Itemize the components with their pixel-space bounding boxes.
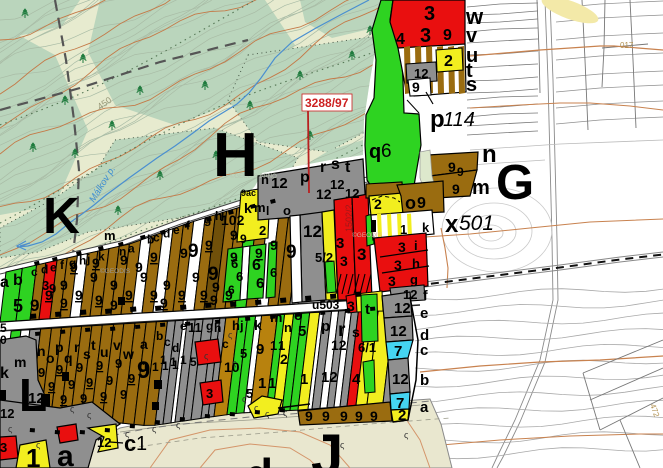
svg-text:v: v (466, 25, 478, 47)
svg-text:9: 9 (240, 232, 247, 246)
svg-text:2: 2 (259, 223, 266, 238)
svg-text:12: 12 (321, 369, 338, 386)
svg-text:g: g (410, 272, 418, 287)
svg-text:3: 3 (394, 257, 402, 273)
svg-text:e: e (180, 319, 187, 333)
svg-text:a: a (420, 399, 429, 416)
svg-text:1: 1 (172, 358, 179, 372)
svg-text:9: 9 (160, 295, 168, 311)
svg-text:d: d (163, 227, 170, 241)
svg-text:e: e (420, 305, 428, 322)
svg-text:9: 9 (48, 379, 55, 394)
svg-text:12: 12 (0, 406, 14, 421)
svg-text:t: t (365, 301, 370, 318)
svg-text:9: 9 (355, 408, 363, 424)
svg-text:9: 9 (457, 165, 464, 179)
svg-text:i: i (414, 238, 418, 253)
svg-text:5/2: 5/2 (315, 250, 333, 265)
svg-text:12: 12 (392, 371, 409, 388)
svg-text:6: 6 (228, 283, 235, 297)
svg-text:6: 6 (256, 275, 264, 292)
svg-text:u503: u503 (312, 298, 340, 312)
svg-text:12: 12 (271, 175, 288, 192)
svg-text:c: c (164, 335, 171, 349)
svg-text:o: o (46, 350, 55, 366)
svg-text:9: 9 (322, 408, 330, 424)
svg-text:9: 9 (150, 287, 158, 303)
svg-text:1: 1 (268, 375, 276, 392)
svg-text:p: p (321, 318, 330, 335)
svg-text:10: 10 (224, 359, 240, 375)
svg-text:c: c (420, 342, 428, 359)
svg-text:m: m (104, 228, 116, 243)
svg-text:9: 9 (30, 296, 39, 315)
svg-text:3: 3 (388, 273, 396, 289)
svg-text:9: 9 (448, 159, 456, 175)
svg-text:g: g (206, 319, 213, 333)
svg-text:ς: ς (8, 424, 13, 434)
svg-text:k: k (0, 365, 9, 382)
svg-text:9ac: 9ac (241, 188, 256, 198)
svg-text:9: 9 (208, 264, 219, 285)
svg-text:6: 6 (381, 141, 392, 162)
svg-text:9: 9 (417, 195, 426, 212)
svg-text:q: q (64, 350, 73, 366)
svg-text:2: 2 (374, 196, 382, 212)
svg-text:9: 9 (443, 27, 452, 44)
svg-text:j: j (86, 252, 90, 266)
svg-text:p: p (55, 339, 64, 355)
svg-text:m: m (270, 309, 282, 325)
svg-text:k: k (244, 200, 252, 216)
svg-text:9: 9 (86, 375, 93, 390)
svg-text:d: d (245, 449, 273, 468)
svg-text:9: 9 (110, 297, 118, 313)
svg-text:o: o (294, 307, 303, 323)
svg-text:9: 9 (56, 362, 63, 377)
svg-text:9: 9 (192, 269, 200, 285)
svg-text:©GEODIS: ©GEODIS (352, 231, 383, 239)
svg-text:9: 9 (200, 287, 208, 303)
svg-text:s: s (352, 324, 360, 340)
svg-text:h: h (79, 254, 86, 268)
svg-text:ς: ς (70, 404, 75, 414)
svg-text:9: 9 (188, 241, 199, 262)
svg-text:9: 9 (163, 277, 171, 293)
svg-text:c: c (124, 431, 136, 456)
svg-text:9: 9 (70, 259, 78, 275)
svg-text:9: 9 (210, 292, 218, 308)
svg-text:3: 3 (206, 386, 213, 401)
svg-text:1: 1 (400, 222, 407, 237)
svg-text:h: h (412, 256, 420, 271)
svg-text:2: 2 (398, 407, 406, 424)
svg-text:9: 9 (60, 392, 67, 407)
svg-text:9: 9 (90, 269, 98, 285)
svg-text:2: 2 (280, 351, 288, 367)
svg-text:ς: ς (204, 351, 209, 361)
svg-text:9: 9 (286, 242, 297, 263)
svg-text:6: 6 (236, 269, 243, 284)
svg-text:9: 9 (120, 252, 128, 268)
svg-text:1: 1 (258, 375, 266, 392)
svg-text:9: 9 (370, 408, 378, 424)
svg-text:ς: ς (87, 410, 92, 420)
svg-text:a: a (128, 241, 135, 255)
svg-text:9: 9 (80, 391, 87, 406)
svg-text:ς: ς (404, 430, 409, 440)
svg-text:c: c (153, 230, 160, 244)
svg-text:5: 5 (190, 355, 197, 369)
svg-text:9: 9 (120, 387, 127, 402)
svg-text:s: s (466, 74, 477, 96)
svg-text:1: 1 (142, 360, 149, 374)
svg-text:6/1: 6/1 (358, 340, 376, 355)
svg-text:9: 9 (106, 373, 113, 388)
svg-text:©GEODIS: ©GEODIS (100, 267, 131, 275)
svg-text:017: 017 (620, 41, 634, 50)
svg-text:9: 9 (230, 227, 238, 243)
svg-text:s: s (331, 156, 340, 173)
svg-text:3288/97: 3288/97 (305, 96, 349, 110)
svg-text:m: m (472, 177, 490, 199)
svg-text:1: 1 (180, 353, 187, 367)
svg-text:o: o (283, 203, 291, 218)
svg-text:a: a (140, 336, 148, 352)
svg-text:d: d (172, 341, 179, 355)
svg-text:9: 9 (100, 389, 107, 404)
svg-text:x: x (445, 211, 459, 238)
svg-text:n: n (284, 320, 292, 335)
svg-text:1: 1 (136, 433, 147, 455)
svg-text:o: o (405, 193, 416, 213)
svg-text:9: 9 (125, 287, 133, 303)
svg-text:9: 9 (150, 249, 158, 265)
svg-text:3: 3 (0, 440, 7, 455)
svg-text:9: 9 (115, 356, 122, 371)
svg-text:G: G (496, 156, 534, 210)
svg-text:9: 9 (92, 255, 100, 271)
svg-text:1502/2: 1502/2 (344, 204, 354, 232)
svg-text:9: 9 (135, 259, 143, 275)
svg-text:12: 12 (394, 300, 411, 317)
svg-text:9: 9 (270, 237, 278, 253)
svg-text:3: 3 (357, 245, 366, 264)
svg-text:p: p (300, 169, 310, 186)
svg-text:n: n (37, 343, 46, 359)
svg-text:r: r (338, 320, 346, 341)
svg-text:m: m (14, 354, 26, 370)
svg-text:c: c (31, 265, 38, 279)
svg-text:9: 9 (38, 365, 45, 380)
svg-text:1: 1 (152, 360, 159, 374)
svg-text:ς: ς (152, 424, 157, 434)
svg-text:m: m (254, 200, 266, 215)
svg-text:r: r (74, 339, 80, 355)
svg-text:12: 12 (345, 186, 359, 201)
svg-text:7: 7 (394, 343, 402, 360)
svg-text:9: 9 (49, 281, 56, 296)
svg-text:n: n (261, 172, 269, 187)
svg-text:9: 9 (178, 287, 186, 303)
svg-text:b: b (420, 372, 429, 389)
svg-text:9: 9 (40, 393, 47, 408)
svg-text:12: 12 (390, 323, 407, 340)
svg-text:a: a (57, 440, 74, 468)
svg-text:J: J (311, 423, 343, 468)
svg-text:9: 9 (60, 295, 68, 311)
svg-text:6: 6 (252, 257, 261, 274)
svg-text:9: 9 (68, 377, 75, 392)
svg-text:9: 9 (256, 341, 264, 358)
svg-text:d: d (41, 262, 48, 276)
svg-text:k: k (422, 220, 430, 235)
svg-text:q: q (369, 141, 381, 163)
svg-text:5: 5 (240, 346, 247, 361)
svg-text:l: l (266, 204, 269, 218)
svg-text:f: f (423, 287, 428, 303)
svg-text:v: v (113, 337, 121, 353)
svg-text:4: 4 (352, 371, 361, 388)
svg-text:3: 3 (398, 239, 406, 255)
svg-text:j: j (239, 318, 244, 333)
svg-text:n: n (482, 141, 497, 168)
svg-text:3: 3 (347, 298, 355, 314)
svg-text:9: 9 (412, 79, 420, 95)
svg-text:w: w (122, 346, 134, 362)
svg-text:s: s (83, 346, 91, 362)
svg-text:g: g (204, 213, 211, 227)
svg-text:b: b (13, 272, 23, 289)
svg-text:3: 3 (424, 3, 435, 25)
svg-text:9: 9 (452, 181, 460, 197)
svg-text:12: 12 (97, 435, 111, 450)
svg-text:1: 1 (162, 359, 169, 373)
svg-text:9: 9 (60, 277, 68, 293)
svg-text:1: 1 (26, 443, 40, 468)
svg-text:501: 501 (459, 212, 494, 235)
svg-text:4: 4 (396, 31, 405, 48)
svg-text:1: 1 (300, 371, 308, 388)
svg-text:9: 9 (205, 237, 213, 253)
svg-text:5: 5 (246, 386, 253, 401)
svg-text:e: e (50, 260, 57, 274)
svg-text:9: 9 (75, 287, 83, 303)
svg-text:5: 5 (13, 296, 23, 316)
svg-text:12: 12 (330, 177, 344, 192)
svg-text:114: 114 (443, 109, 475, 131)
svg-text:9: 9 (95, 292, 103, 308)
svg-text:a: a (0, 274, 9, 291)
svg-text:3: 3 (340, 253, 348, 269)
svg-text:9: 9 (305, 408, 313, 424)
svg-text:ς: ς (265, 409, 270, 419)
svg-text:9: 9 (340, 408, 348, 424)
svg-text:5: 5 (298, 323, 306, 340)
svg-text:3: 3 (42, 278, 49, 293)
svg-text:1: 1 (270, 338, 277, 353)
svg-text:t: t (345, 159, 351, 176)
svg-text:3: 3 (420, 25, 431, 47)
svg-text:b: b (156, 329, 163, 343)
svg-text:9: 9 (110, 277, 118, 293)
svg-text:H: H (213, 121, 258, 190)
svg-text:e: e (173, 223, 180, 237)
svg-text:11: 11 (188, 320, 202, 335)
svg-text:c: c (222, 337, 229, 351)
svg-text:6: 6 (270, 265, 277, 280)
svg-text:K: K (43, 187, 80, 244)
svg-text:h: h (214, 321, 221, 335)
svg-text:r: r (320, 159, 326, 176)
svg-text:h: h (232, 318, 240, 333)
svg-text:9: 9 (180, 245, 188, 261)
svg-text:2: 2 (444, 53, 453, 70)
svg-text:9: 9 (76, 360, 83, 375)
svg-text:102: 102 (221, 212, 245, 228)
svg-text:k: k (254, 317, 262, 333)
svg-text:ς: ς (176, 420, 181, 430)
svg-text:t: t (91, 337, 96, 353)
svg-text:9: 9 (128, 371, 135, 386)
svg-text:0: 0 (0, 333, 7, 347)
svg-text:3: 3 (336, 235, 344, 252)
svg-text:12: 12 (303, 222, 322, 241)
svg-text:9: 9 (96, 358, 103, 373)
